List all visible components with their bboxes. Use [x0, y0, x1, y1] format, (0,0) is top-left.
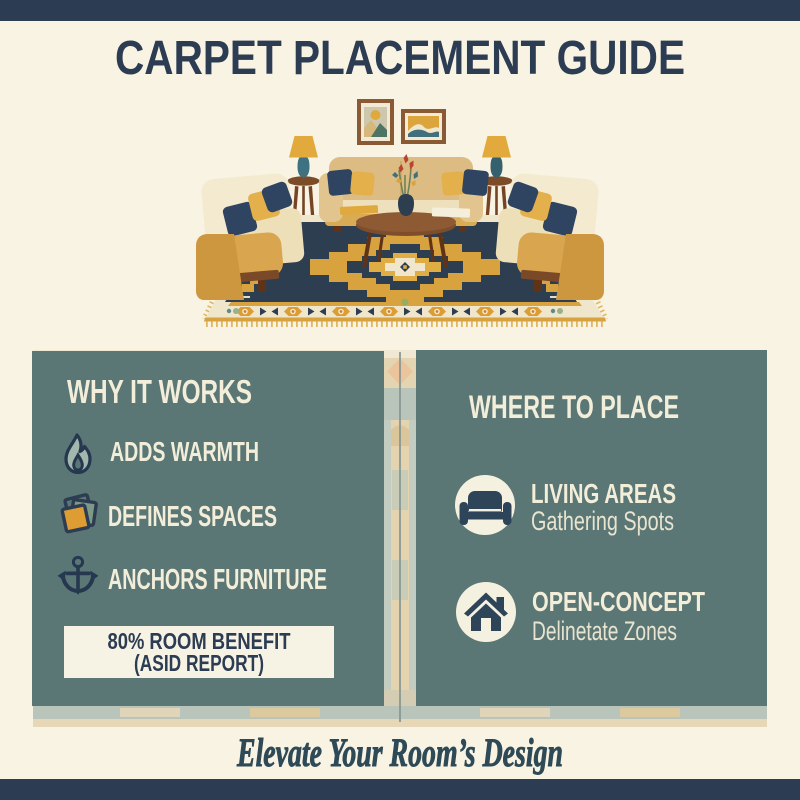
svg-text:WHERE TO PLACE: WHERE TO PLACE	[469, 389, 679, 425]
svg-text:WHY IT WORKS: WHY IT WORKS	[67, 373, 252, 410]
svg-text:Gathering Spots: Gathering Spots	[531, 506, 674, 536]
svg-text:Delinetate Zones: Delinetate Zones	[532, 616, 677, 646]
svg-text:ADDS WARMTH: ADDS WARMTH	[110, 436, 259, 467]
svg-text:OPEN-CONCEPT: OPEN-CONCEPT	[532, 586, 705, 617]
svg-text:LIVING AREAS: LIVING AREAS	[531, 478, 676, 509]
svg-text:DEFINES SPACES: DEFINES SPACES	[108, 501, 277, 533]
svg-text:Elevate Your Room’s Design: Elevate Your Room’s Design	[236, 730, 563, 775]
svg-text:(ASID REPORT): (ASID REPORT)	[134, 650, 264, 676]
svg-text:ANCHORS FURNITURE: ANCHORS FURNITURE	[108, 564, 327, 596]
svg-text:CARPET PLACEMENT GUIDE: CARPET PLACEMENT GUIDE	[115, 32, 685, 85]
